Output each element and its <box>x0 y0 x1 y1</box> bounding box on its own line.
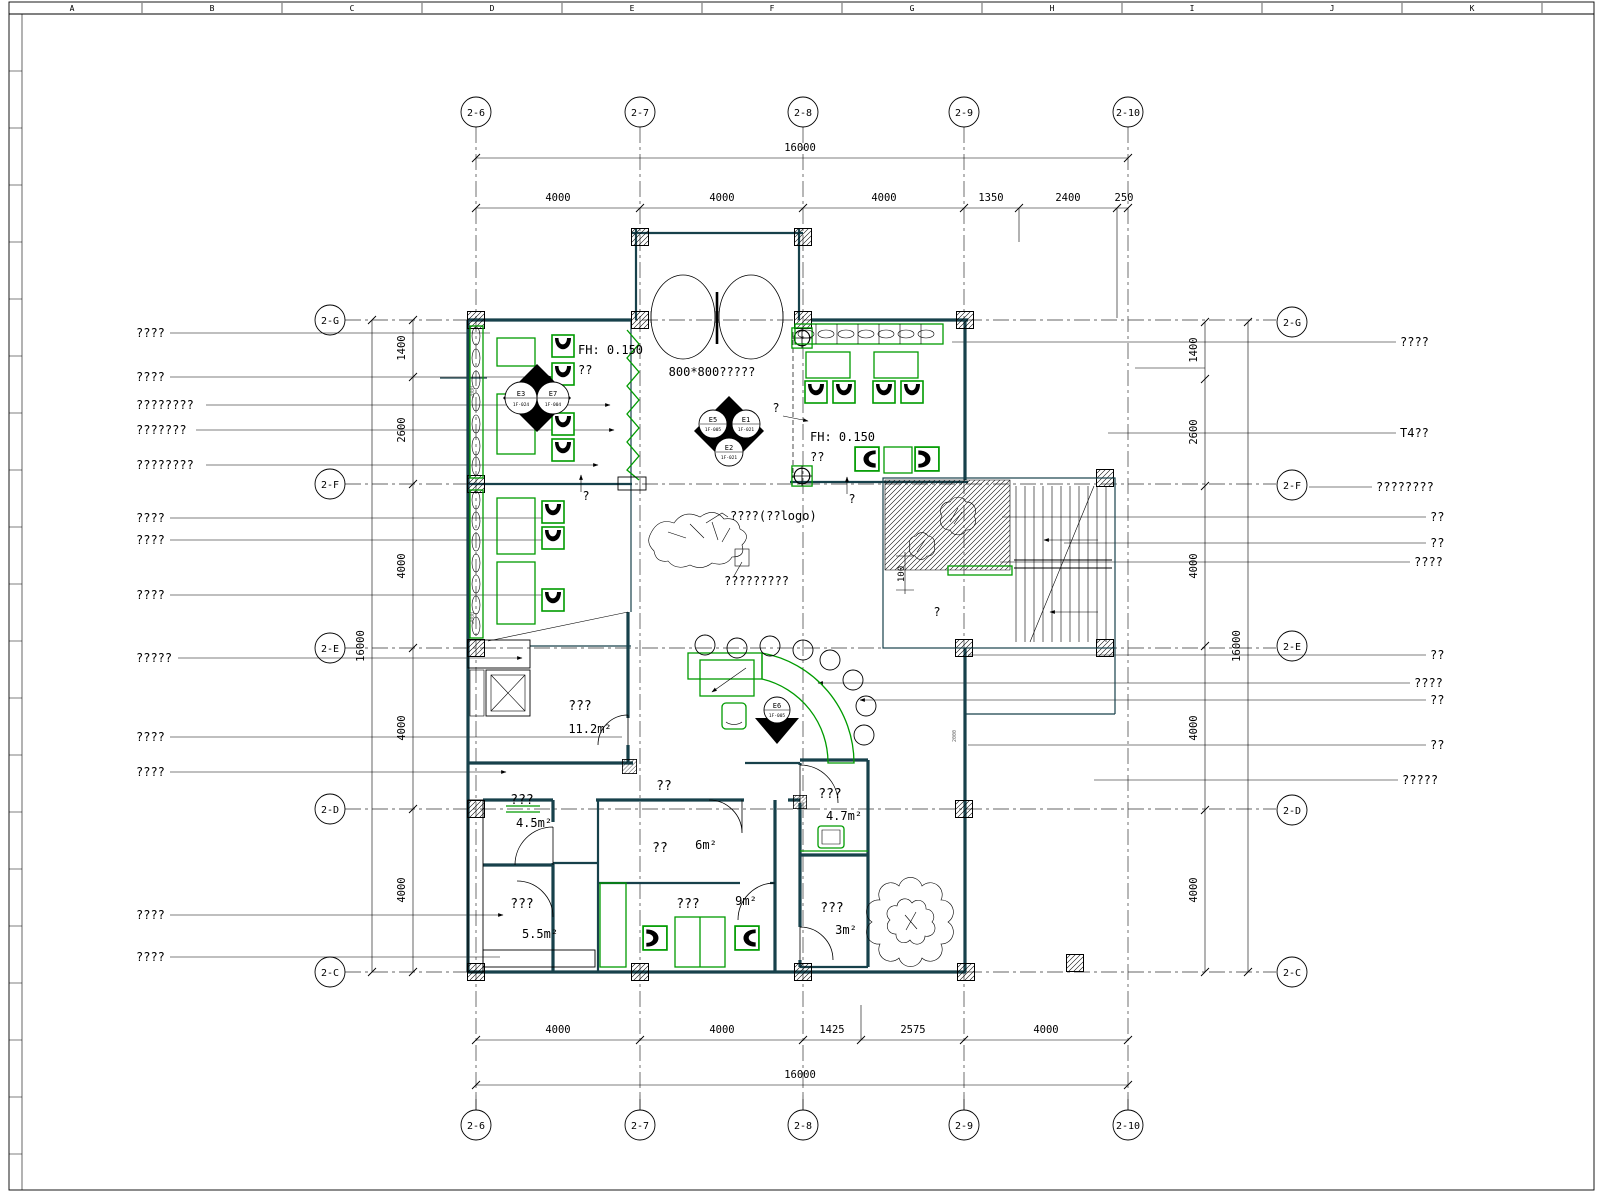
room-area: 5.5m² <box>522 927 558 941</box>
grid-bubble-label: 2-10 <box>1116 1121 1140 1132</box>
marker-code: 1F-021 <box>738 427 755 433</box>
grid-bubble-label: 2-E <box>1283 642 1301 653</box>
callout-label: ???????? <box>1376 480 1434 494</box>
marker-code: 1F-005 <box>769 713 786 719</box>
door-swings <box>515 715 838 960</box>
dim-top-seg: 4000 <box>871 192 896 204</box>
callout-label: ???? <box>1414 555 1443 569</box>
room-name: ??? <box>820 901 843 916</box>
callout-label: ?? <box>1430 536 1444 550</box>
marker-id: E2 <box>725 444 733 452</box>
fh-level-note-sub: ?? <box>578 363 592 377</box>
grid-bubble-label: 2-8 <box>794 1121 812 1132</box>
dim-top-seg: 1350 <box>978 192 1003 204</box>
query-mark: ? <box>772 401 779 415</box>
grid-bubble-label: 2-C <box>321 968 339 979</box>
grid-bubble-label: 2-7 <box>631 108 649 119</box>
ruler-letter: J <box>1330 4 1335 13</box>
grid-bubbles: 2-6 2-7 2-8 2-9 2-10 2-6 2-7 2-8 2-9 2-1… <box>315 97 1307 1140</box>
office-furniture <box>506 806 868 967</box>
dim-left-seg: 4000 <box>396 553 408 578</box>
callout-label: ???? <box>1414 676 1443 690</box>
dim-bottom-seg: 4000 <box>545 1024 570 1036</box>
grid-bubble-label: 2-D <box>1283 806 1301 817</box>
ruler-letter: A <box>70 4 75 13</box>
ruler-letter: E <box>630 4 635 13</box>
marker-code: 1F-004 <box>545 402 562 408</box>
ruler-letter: C <box>350 4 355 13</box>
dim-right-seg: 4000 <box>1188 715 1200 740</box>
grid-bubble-label: 2-10 <box>1116 108 1140 119</box>
room-name: ??? <box>676 897 699 912</box>
callout-label: ???? <box>136 511 165 525</box>
corridor-label: ?? <box>656 779 672 794</box>
fh-level-note-sub: ?? <box>810 450 824 464</box>
ruler-letter: F <box>770 4 775 13</box>
room-area: 4.5m² <box>516 816 552 830</box>
floor-plan-canvas: A B C D E F G H I J K 2-6 2-7 2-8 2-9 2-… <box>0 0 1600 1200</box>
marker-id: E6 <box>773 702 781 710</box>
ramp-dim: 100 <box>897 566 907 582</box>
wall-micronote: 2000 <box>952 730 958 742</box>
grid-bubble-label: 2-6 <box>467 108 485 119</box>
callout-label: ???????? <box>136 458 194 472</box>
sheet-ruler-letters: A B C D E F G H I J K <box>70 4 1475 13</box>
room-name: ??? <box>568 699 591 714</box>
marker-id: E5 <box>709 416 717 424</box>
grid-bubble-row-top: 2-6 2-7 2-8 2-9 2-10 <box>461 97 1143 127</box>
room-name: ??? <box>818 787 841 802</box>
tree <box>866 877 953 966</box>
dim-top-seg: 2400 <box>1055 192 1080 204</box>
grid-bubble-label: 2-9 <box>955 1121 973 1132</box>
callout-label: ?? <box>1430 648 1444 662</box>
grid-bubble-col-right: 2-G 2-F 2-E 2-D 2-C <box>1277 307 1307 987</box>
marker-code: 1F-005 <box>705 427 722 433</box>
callout-label: ??????? <box>136 423 187 437</box>
room-labels: ??? 11.2m² ??? 4.5m² ??? 5.5m² ?? 6m² ??… <box>510 699 862 941</box>
dim-top-overall: 16000 <box>784 142 816 154</box>
dimension-lines: 16000 4000 4000 4000 1350 2400 250 4000 … <box>355 142 1252 1089</box>
room-area: 6m² <box>695 838 717 852</box>
callout-label: ????? <box>1402 773 1438 787</box>
callout-label: ???? <box>136 908 165 922</box>
room-area: 4.7m² <box>826 809 862 823</box>
staircase: 100 <box>883 478 1115 648</box>
callout-label: ???? <box>136 533 165 547</box>
grid-bubble-label: 2-8 <box>794 108 812 119</box>
fh-level-note: FH: 0.150 <box>578 343 643 357</box>
marker-code: 1F-021 <box>721 455 738 461</box>
grid-bubble-label: 2-D <box>321 805 339 816</box>
callout-label: ?? <box>1430 738 1444 752</box>
ruler-letter: I <box>1190 4 1195 13</box>
logo-sketch: ????(??logo) ????????? <box>649 509 817 588</box>
dim-right-seg: 4000 <box>1188 877 1200 902</box>
grid-bubble-label: 2-F <box>321 480 339 491</box>
dim-right-seg: 4000 <box>1188 553 1200 578</box>
dim-right-seg: 1400 <box>1188 337 1200 362</box>
callout-label: ?? <box>1430 510 1444 524</box>
callout-label: ???? <box>136 730 165 744</box>
grid-bubble-label: 2-6 <box>467 1121 485 1132</box>
fh-level-note: FH: 0.150 <box>810 430 875 444</box>
dim-bottom-seg: 4000 <box>709 1024 734 1036</box>
dim-bottom-seg: 1425 <box>819 1024 844 1036</box>
ruler-letter: G <box>910 4 915 13</box>
ruler-letter: B <box>210 4 215 13</box>
grid-bubble-label: 2-E <box>321 644 339 655</box>
room-area: 3m² <box>835 923 857 937</box>
insulated-wall <box>468 800 483 972</box>
elevator <box>470 670 530 716</box>
room-area: 11.2m² <box>568 722 611 736</box>
logo-sub-callout: ????????? <box>724 574 789 588</box>
grid-bubble-label: 2-C <box>1283 968 1301 979</box>
grid-centerlines <box>345 127 1276 1110</box>
marker-id: E7 <box>549 390 557 398</box>
ruler-letter: D <box>490 4 495 13</box>
hatched-wall <box>600 883 626 967</box>
dim-top-seg: 4000 <box>709 192 734 204</box>
callout-label: ?? <box>1430 693 1444 707</box>
dim-right-seg: 2600 <box>1188 419 1200 444</box>
callout-label: ???? <box>136 950 165 964</box>
elevation-marker-e5-e1-e2: E5 1F-005 E1 1F-021 E2 1F-021 <box>694 396 764 466</box>
query-mark: ? <box>848 492 855 506</box>
dim-right-overall: 16000 <box>1231 630 1243 662</box>
grid-bubble-label: 2-G <box>321 316 339 327</box>
room-name: ?? <box>652 841 668 856</box>
sheet-frame <box>9 2 1594 1190</box>
dim-top-seg: 4000 <box>545 192 570 204</box>
entrance-doors: 800*800????? <box>651 275 783 379</box>
dim-bottom-seg: 4000 <box>1033 1024 1058 1036</box>
grid-bubble-label: 2-F <box>1283 481 1301 492</box>
callout-label: T4?? <box>1400 426 1429 440</box>
callout-label: ???? <box>136 370 165 384</box>
query-mark: ? <box>582 489 589 503</box>
callout-label: ???????? <box>136 398 194 412</box>
room-name: ??? <box>510 793 533 808</box>
elevation-marker-e6: E6 1F-005 <box>755 697 799 744</box>
lounge-furniture-lower <box>470 490 564 638</box>
grid-bubble-row-bottom: 2-6 2-7 2-8 2-9 2-10 <box>461 1095 1143 1140</box>
insulated-wall <box>483 950 595 967</box>
grid-bubble-label: 2-7 <box>631 1121 649 1132</box>
room-name: ??? <box>510 897 533 912</box>
marker-id: E3 <box>517 390 525 398</box>
dim-bottom-overall: 16000 <box>784 1069 816 1081</box>
dim-left-seg: 1400 <box>396 335 408 360</box>
lounge-furniture-right: FH: 0.150 ?? <box>795 324 943 473</box>
cad-floor-plan-sheet: A B C D E F G H I J K 2-6 2-7 2-8 2-9 2-… <box>0 0 1600 1200</box>
ruler-letter: H <box>1050 4 1055 13</box>
grid-bubble-label: 2-9 <box>955 108 973 119</box>
callout-label: ???? <box>136 765 165 779</box>
dim-left-overall: 16000 <box>355 630 367 662</box>
room-area: 9m² <box>735 894 757 908</box>
dim-left-seg: 4000 <box>396 877 408 902</box>
callout-label: ???? <box>136 588 165 602</box>
dim-top-seg: 250 <box>1115 192 1134 204</box>
grid-bubble-col-left: 2-G 2-F 2-E 2-D 2-C <box>315 305 345 987</box>
query-mark: ? <box>933 605 940 619</box>
callout-label: ???? <box>136 326 165 340</box>
entrance-note: 800*800????? <box>669 365 756 379</box>
marker-code: 1F-024 <box>513 402 530 408</box>
wall-micronote: 2000 <box>470 386 476 398</box>
grid-bubble-label: 2-G <box>1283 318 1301 329</box>
marker-id: E1 <box>742 416 750 424</box>
wall-micronote: 2000 <box>470 612 476 624</box>
callout-label: ???? <box>1400 335 1429 349</box>
logo-callout: ????(??logo) <box>730 509 817 523</box>
ruler-letter: K <box>1470 4 1475 13</box>
dim-bottom-seg: 2575 <box>900 1024 925 1036</box>
callout-label: ????? <box>136 651 172 665</box>
